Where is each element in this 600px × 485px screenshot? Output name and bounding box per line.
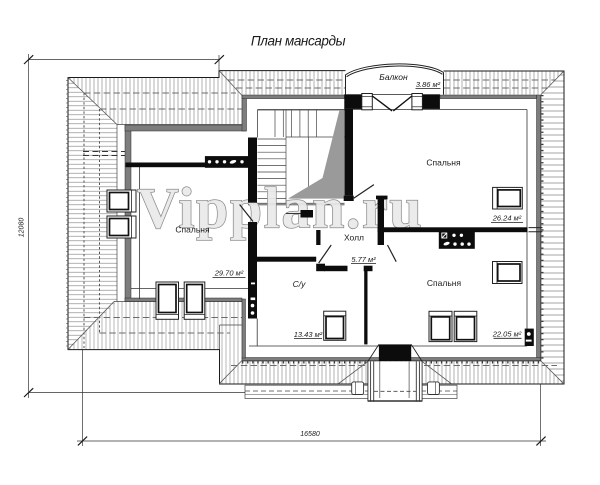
svg-text:Балкон: Балкон bbox=[379, 72, 408, 82]
svg-text:Спальня: Спальня bbox=[426, 158, 461, 168]
svg-text:С/у: С/у bbox=[293, 279, 307, 289]
svg-text:Спальня: Спальня bbox=[427, 278, 462, 288]
svg-text:13.43 м²: 13.43 м² bbox=[294, 330, 323, 339]
svg-text:Спальня: Спальня bbox=[175, 225, 210, 235]
svg-text:16580: 16580 bbox=[300, 431, 320, 438]
svg-text:22.05 м²: 22.05 м² bbox=[492, 330, 522, 339]
svg-text:5.77 м²: 5.77 м² bbox=[351, 255, 376, 264]
svg-text:26.24 м²: 26.24 м² bbox=[492, 214, 522, 223]
svg-text:3.86 м²: 3.86 м² bbox=[416, 80, 441, 89]
svg-text:Холл: Холл bbox=[344, 233, 364, 243]
svg-text:12080: 12080 bbox=[19, 218, 26, 238]
svg-text:29.70 м²: 29.70 м² bbox=[214, 269, 244, 278]
svg-text:План мансарды: План мансарды bbox=[251, 34, 346, 49]
